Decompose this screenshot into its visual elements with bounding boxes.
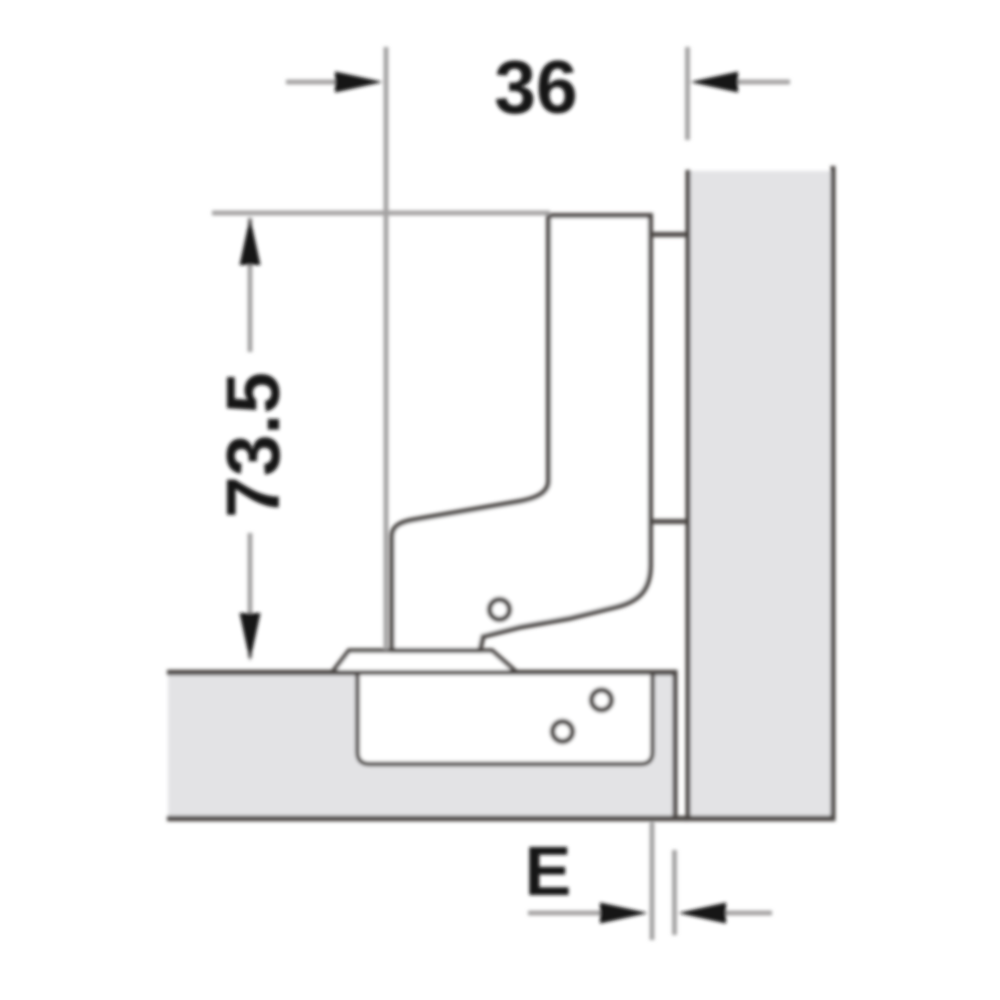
svg-text:73.5: 73.5 xyxy=(211,372,295,518)
svg-text:36: 36 xyxy=(494,45,577,129)
svg-text:E: E xyxy=(525,832,572,910)
